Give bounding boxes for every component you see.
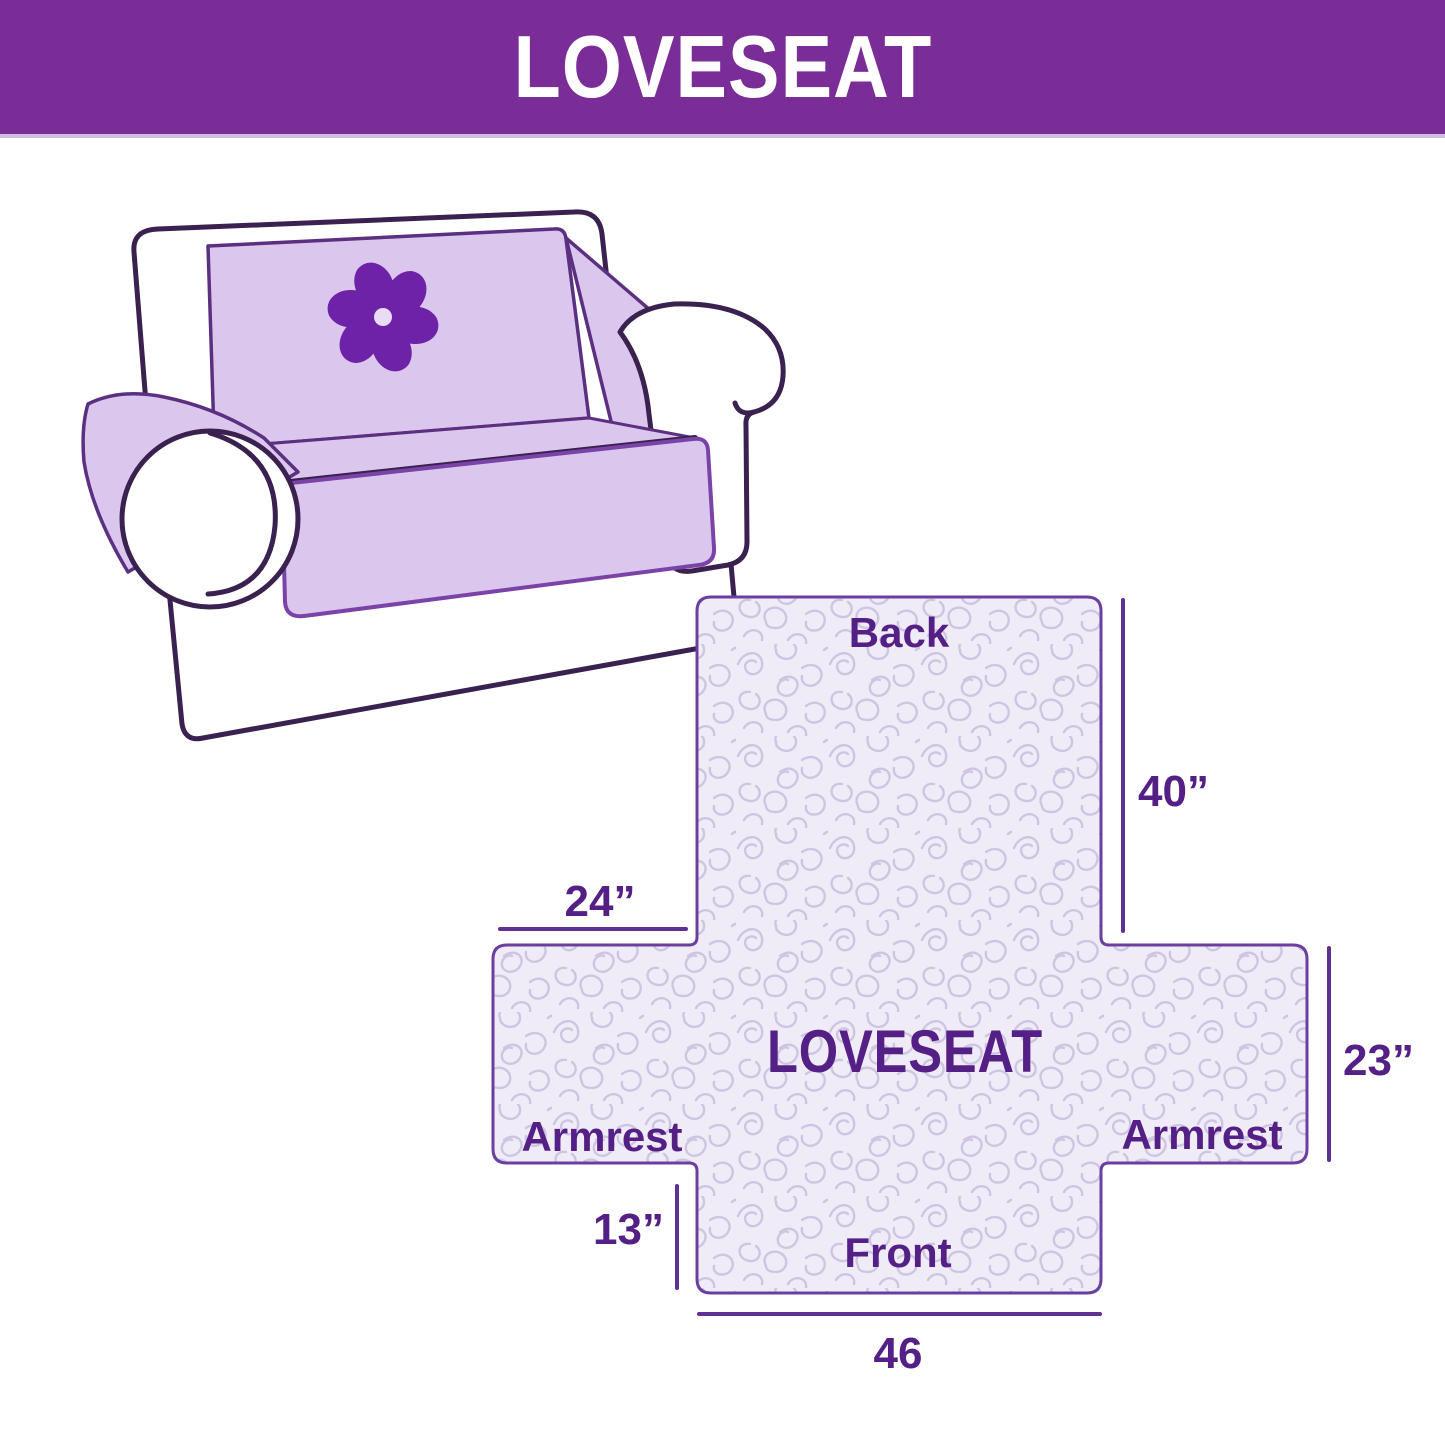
armrest-left-label: Armrest [521, 1113, 682, 1160]
armrest-top-width-value: 24” [565, 877, 636, 926]
infographic-canvas: Back LOVESEAT Armrest Armrest Front 40” … [0, 0, 1445, 1445]
front-bottom-width-value: 46 [874, 1329, 923, 1378]
front-skirt-height-value: 13” [593, 1205, 664, 1254]
armrest-right-label: Armrest [1121, 1111, 1282, 1158]
loveseat-illustration [83, 212, 783, 739]
back-height-value: 40” [1138, 767, 1209, 816]
cover-dimension-diagram: Back LOVESEAT Armrest Armrest Front 40” … [493, 597, 1414, 1378]
cover-outline-quilt-pattern [493, 597, 1307, 1293]
sofa-left-arm-roll [122, 431, 298, 607]
front-panel-label: Front [844, 1229, 951, 1276]
armrest-side-depth-value: 23” [1343, 1036, 1414, 1085]
diagram-center-label: LOVESEAT [767, 1018, 1043, 1085]
back-panel-label: Back [849, 609, 950, 656]
